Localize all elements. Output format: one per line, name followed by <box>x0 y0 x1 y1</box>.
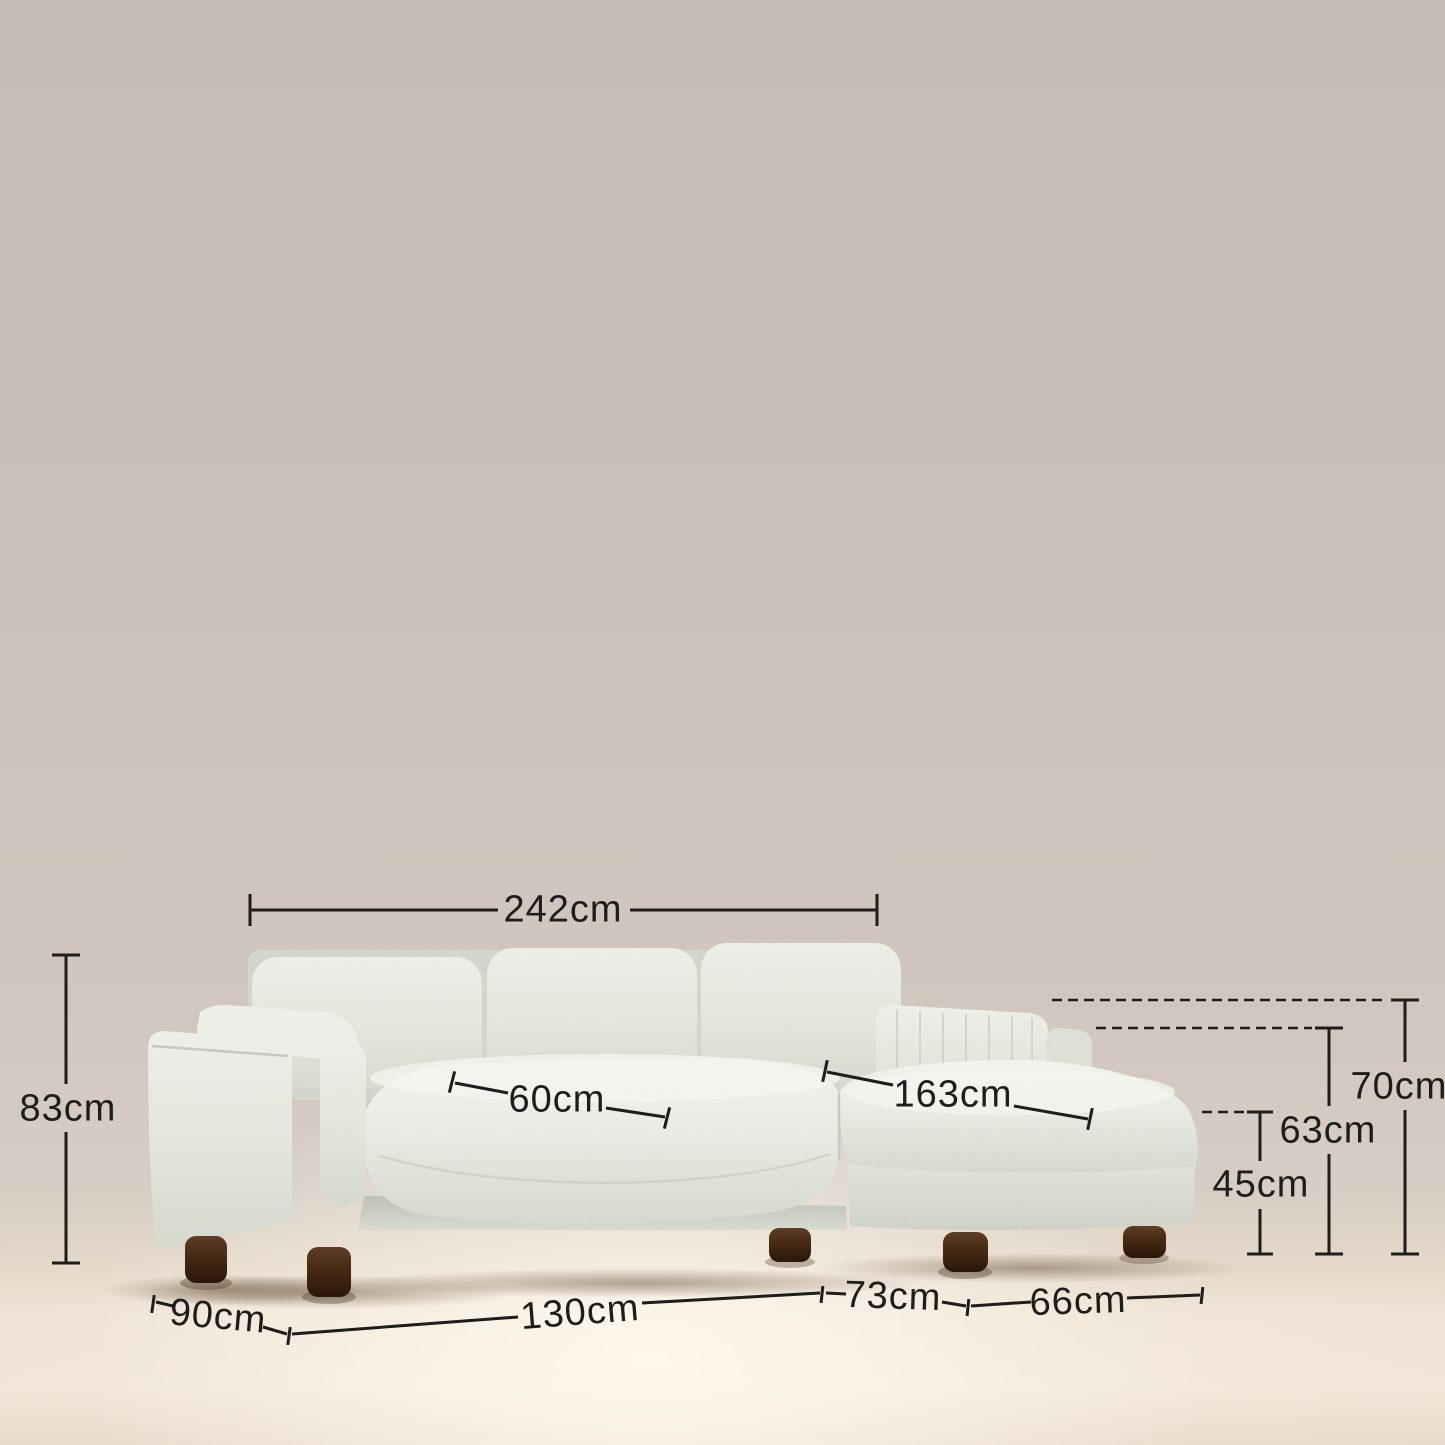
dim-label-back-height: 63cm <box>1280 1110 1377 1153</box>
sofa-illustration <box>148 943 1198 1250</box>
leg-rear-left <box>185 1236 227 1283</box>
leg-front-left <box>307 1247 351 1297</box>
left-arm-outer <box>148 1031 292 1250</box>
dim-label-seat-depth: 60cm <box>509 1079 606 1122</box>
dim-label-overall-height: 83cm <box>20 1088 117 1131</box>
leg-chaise-left <box>943 1232 988 1272</box>
dim-label-arm-height: 70cm <box>1351 1066 1445 1109</box>
dim-label-chaise-width: 66cm <box>1029 1279 1127 1325</box>
dim-label-overall-width: 242cm <box>503 889 622 932</box>
leg-middle <box>769 1228 811 1262</box>
dim-label-inner-chaise-width: 73cm <box>844 1274 942 1320</box>
leg-chaise-right <box>1123 1226 1166 1258</box>
sofa-dimensions-illustration <box>0 0 1445 1445</box>
dim-label-side-depth: 90cm <box>168 1291 268 1342</box>
dim-label-chaise-length: 163cm <box>893 1074 1012 1117</box>
left-arm-pad-inner <box>320 1038 366 1206</box>
scene: 242cm 83cm 60cm 163cm 70cm 63cm 45cm 90c… <box>0 0 1445 1445</box>
dim-line-arm-height <box>1391 1000 1419 1254</box>
chaise-base <box>848 1164 1195 1230</box>
dim-label-seat-height: 45cm <box>1213 1164 1310 1207</box>
